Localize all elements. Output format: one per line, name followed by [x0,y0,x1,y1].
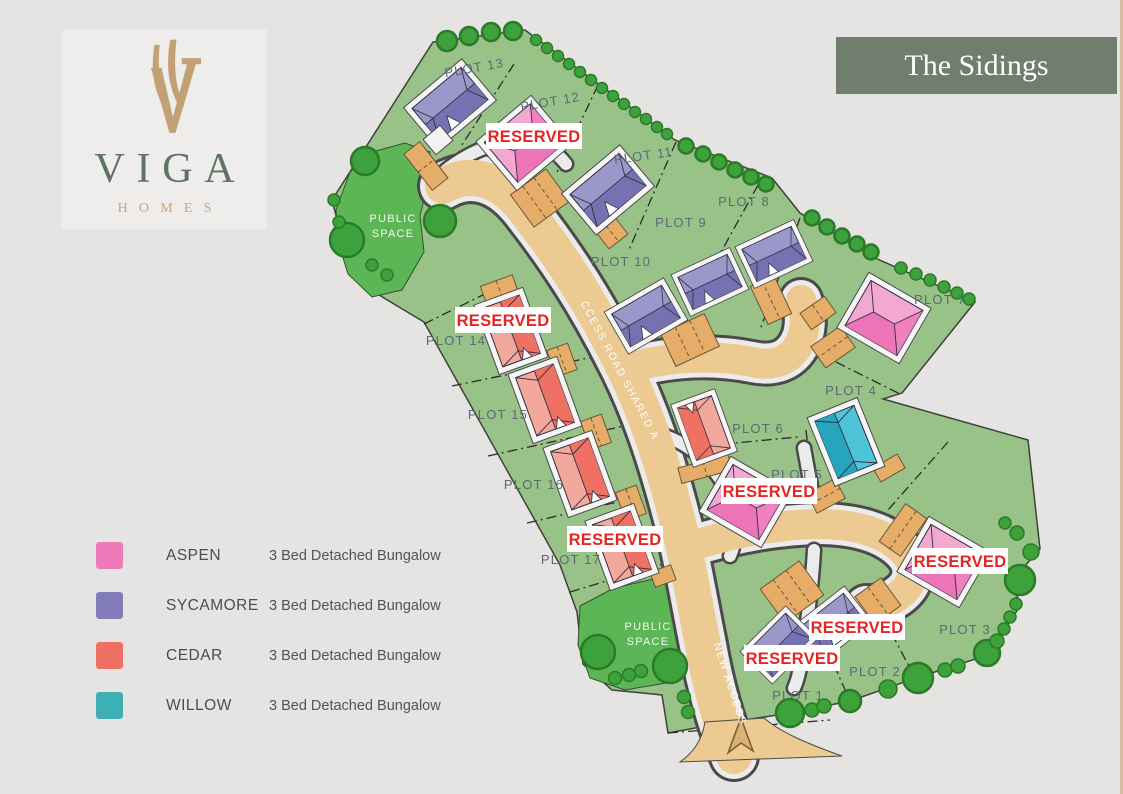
legend-item-willow: WILLOW 3 Bed Detached Bungalow [96,692,441,719]
plot-label-16: PLOT 16 [504,477,564,492]
legend-item-name: ASPEN [166,547,269,565]
legend-item-description: 3 Bed Detached Bungalow [269,598,441,614]
svg-text:SPACE: SPACE [627,636,669,648]
legend-item-name: SYCAMORE [166,597,269,615]
cedar-swatch-icon [96,642,123,669]
svg-text:RESERVED: RESERVED [811,619,904,637]
reserved-badge-plot-5: RESERVED [721,478,817,504]
svg-text:PUBLIC: PUBLIC [625,621,672,633]
svg-text:SPACE: SPACE [372,228,414,240]
legend-item-description: 3 Bed Detached Bungalow [269,648,441,664]
plot-label-1: PLOT 1 [772,688,824,703]
legend-item-cedar: CEDAR 3 Bed Detached Bungalow [96,642,441,669]
legend-item-aspen: ASPEN 3 Bed Detached Bungalow [96,542,441,569]
plot-label-15: PLOT 15 [468,407,528,422]
reserved-badge-plot-17: RESERVED [567,526,663,552]
plot-label-4: PLOT 4 [825,383,877,398]
legend-item-description: 3 Bed Detached Bungalow [269,698,441,714]
sycamore-swatch-icon [96,592,123,619]
legend-item-sycamore: SYCAMORE 3 Bed Detached Bungalow [96,592,441,619]
svg-text:RESERVED: RESERVED [457,312,550,330]
reserved-badge-plot-12: RESERVED [486,123,582,149]
page: { "header": { "banner_title": "The Sidin… [0,0,1123,794]
plot-label-3: PLOT 3 [939,622,991,637]
junction-flare [680,718,842,762]
legend: ASPEN 3 Bed Detached Bungalow SYCAMORE 3… [96,542,441,742]
reserved-badge-plot-3: RESERVED [912,548,1008,574]
plot-label-7: PLOT 7 [914,292,966,307]
legend-item-description: 3 Bed Detached Bungalow [269,548,441,564]
svg-text:RESERVED: RESERVED [723,483,816,501]
svg-text:RESERVED: RESERVED [746,650,839,668]
plot-label-9: PLOT 9 [655,215,707,230]
legend-item-name: WILLOW [166,697,269,715]
legend-item-name: CEDAR [166,647,269,665]
plot-label-8: PLOT 8 [718,194,770,209]
brand-logo: VIGA HOMES [62,30,267,229]
brand-monogram-icon [121,38,209,138]
aspen-swatch-icon [96,542,123,569]
svg-text:RESERVED: RESERVED [488,128,581,146]
reserved-badge-plot-14: RESERVED [455,307,551,333]
plot-label-14: PLOT 14 [426,333,486,348]
svg-text:RESERVED: RESERVED [914,553,1007,571]
plot-label-10: PLOT 10 [591,254,651,269]
svg-text:RESERVED: RESERVED [569,531,662,549]
plot-label-6: PLOT 6 [732,421,784,436]
development-title-banner: The Sidings [836,37,1117,94]
reserved-badge-plot-1: RESERVED [744,645,840,671]
willow-swatch-icon [96,692,123,719]
plot-label-2: PLOT 2 [849,664,901,679]
brand-name: VIGA [62,145,267,193]
brand-subtitle: HOMES [62,201,267,217]
page-title: The Sidings [904,49,1048,82]
plot-label-17: PLOT 17 [541,552,601,567]
reserved-badge-plot-2: RESERVED [809,614,905,640]
svg-text:PUBLIC: PUBLIC [370,213,417,225]
